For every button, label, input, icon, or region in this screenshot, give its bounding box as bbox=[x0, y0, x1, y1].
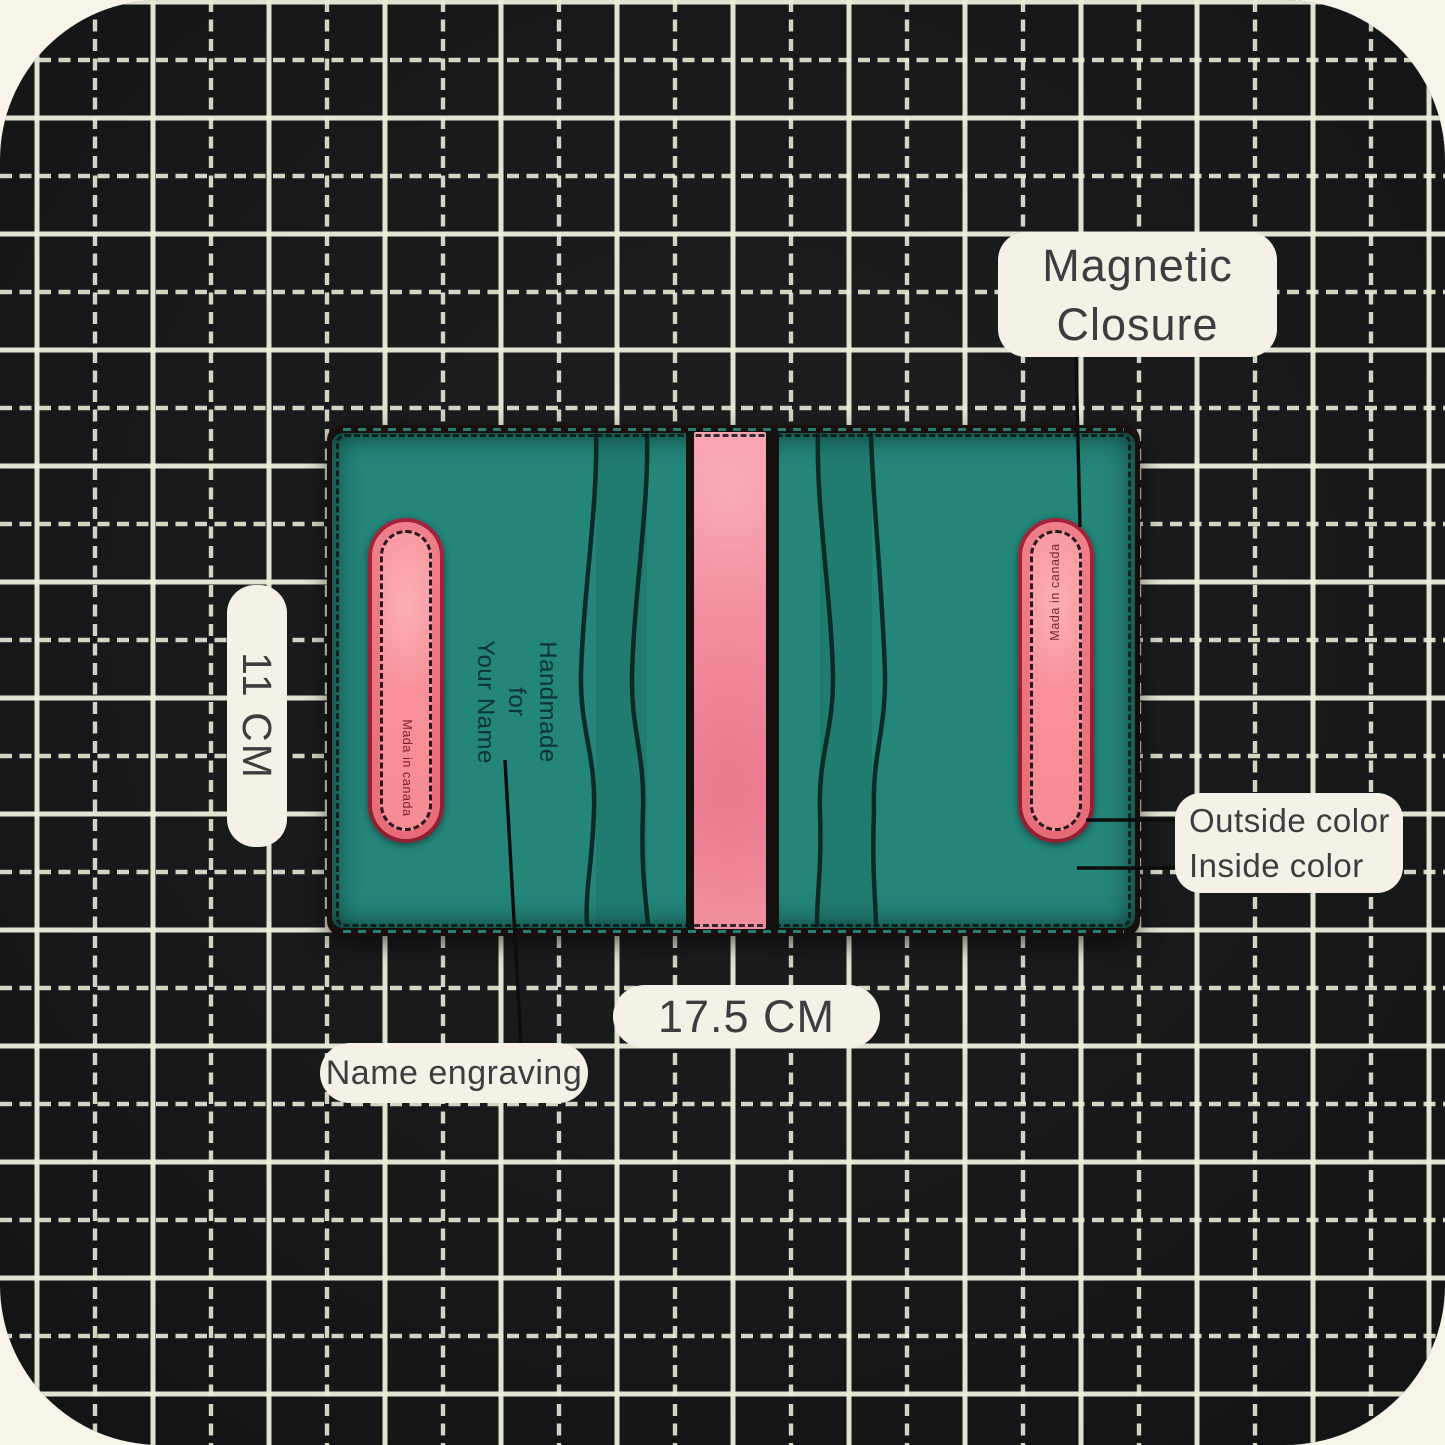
made-in-canada-engraving-right: Mada in canada bbox=[1048, 527, 1064, 657]
height-dimension-text: 11 CM bbox=[233, 585, 281, 847]
color-legend-label: Outside color Inside color bbox=[1175, 793, 1403, 893]
engraving-line-1: Handmade bbox=[534, 641, 561, 762]
engraving-line-3: Your Name bbox=[472, 640, 499, 764]
magnetic-closure-line2: Closure bbox=[998, 295, 1277, 354]
perimeter-stitching bbox=[336, 434, 1131, 927]
engraving-line-2: for bbox=[503, 687, 530, 717]
magnetic-closure-label: Magnetic Closure bbox=[998, 232, 1277, 357]
name-engraving-text: Handmade for Your Name bbox=[467, 612, 563, 792]
made-in-canada-engraving-left: Mada in canada bbox=[398, 703, 414, 833]
width-dimension-label: 17.5 CM bbox=[613, 985, 880, 1048]
height-dimension-label: 11 CM bbox=[227, 585, 287, 847]
magnetic-closure-line1: Magnetic bbox=[998, 236, 1277, 295]
annotated-product-photo: Handmade for Your Name Mada in canada Ma… bbox=[0, 0, 1445, 1445]
bottom-edge-thread bbox=[343, 930, 1124, 933]
top-edge-thread bbox=[343, 428, 1124, 431]
name-engraving-label: Name engraving bbox=[320, 1043, 588, 1103]
wallet-photo bbox=[327, 425, 1140, 936]
inside-color-text: Inside color bbox=[1189, 843, 1403, 888]
outside-color-text: Outside color bbox=[1189, 798, 1403, 843]
